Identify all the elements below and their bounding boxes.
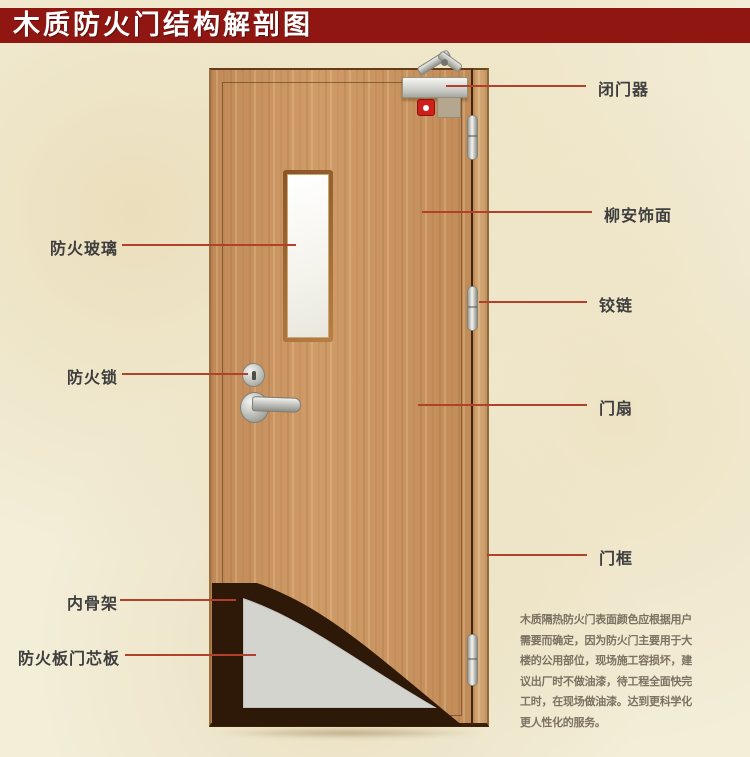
product-description: 木质隔热防火门表面颜色应根据用户需要而确定，因为防火门主要用于大楼的公用部位，现… [520, 610, 692, 733]
label-veneer: 柳安饰面 [604, 202, 672, 226]
label-fire-glass: 防火玻璃 [50, 235, 118, 259]
leader-line-door-leaf [418, 404, 587, 406]
leader-line-fire-glass [122, 244, 296, 246]
hinge-middle [467, 286, 478, 331]
indicator-dot-icon [423, 105, 429, 111]
label-fire-lock: 防火锁 [67, 364, 118, 388]
fire-glass-window [283, 170, 333, 342]
leader-line-veneer [422, 211, 592, 213]
label-core-board: 防火板门芯板 [18, 645, 120, 669]
hinge-bottom [467, 634, 478, 686]
fire-lock-cylinder [242, 363, 265, 387]
keyhole-icon [252, 371, 256, 380]
door-handle [252, 396, 301, 413]
door-closer [402, 77, 468, 98]
label-inner-skeleton: 内骨架 [67, 590, 118, 614]
alarm-indicator-icon [417, 99, 435, 116]
door-closer-knuckle-icon [441, 59, 448, 66]
label-door-leaf: 门扇 [599, 395, 633, 419]
label-door-closer: 闭门器 [598, 76, 649, 100]
name-plate [437, 97, 461, 118]
leader-line-core-board [125, 654, 256, 656]
leader-line-hinge [479, 301, 587, 303]
door-shadow [214, 728, 484, 738]
leader-line-door-closer [446, 85, 586, 87]
door-frame [473, 68, 489, 727]
page-title: 木质防火门结构解剖图 [0, 8, 750, 43]
leader-line-door-frame [487, 554, 587, 556]
label-hinge: 铰链 [599, 292, 633, 316]
hinge-top [467, 115, 478, 160]
glass-pane [287, 174, 329, 338]
label-door-frame: 门框 [599, 545, 633, 569]
leader-line-fire-lock [122, 373, 248, 375]
leader-line-inner-skeleton [120, 599, 236, 601]
